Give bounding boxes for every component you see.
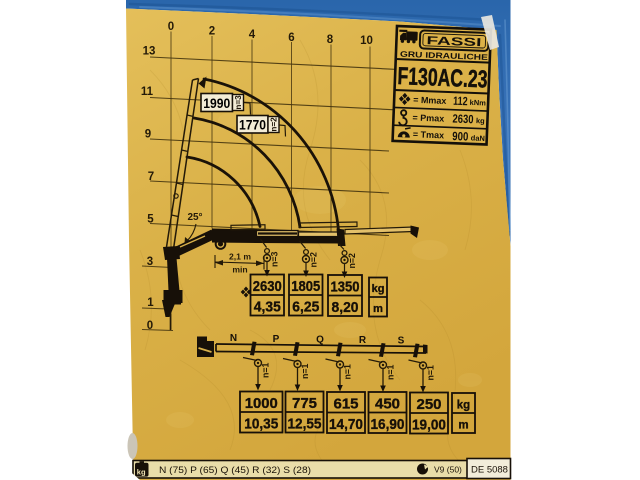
svg-text:900: 900 bbox=[452, 129, 469, 144]
svg-text:4: 4 bbox=[249, 29, 256, 41]
svg-text:n=1: n=1 bbox=[300, 363, 310, 379]
svg-text:Q: Q bbox=[316, 335, 324, 346]
svg-text:n=2: n=2 bbox=[309, 252, 319, 268]
svg-text:11: 11 bbox=[141, 86, 154, 98]
svg-text:N: N bbox=[230, 333, 237, 344]
svg-text:14,70: 14,70 bbox=[329, 417, 363, 433]
svg-text:R: R bbox=[359, 335, 367, 346]
svg-text:615: 615 bbox=[334, 397, 359, 413]
svg-text:1350: 1350 bbox=[331, 280, 360, 296]
svg-text:DE 5088: DE 5088 bbox=[471, 465, 508, 476]
svg-text:n=1: n=1 bbox=[343, 364, 353, 380]
svg-text:N (75) P (65) Q (45) R (32): N (75) P (65) Q (45) R (32) S (28) bbox=[159, 465, 311, 475]
svg-text:7: 7 bbox=[148, 171, 154, 183]
svg-text:1990: 1990 bbox=[203, 96, 230, 111]
svg-text:10,35: 10,35 bbox=[244, 417, 278, 433]
svg-text:F130AC.23: F130AC.23 bbox=[397, 63, 488, 93]
svg-text:daN: daN bbox=[471, 133, 486, 143]
svg-text:S: S bbox=[398, 336, 405, 347]
svg-text:n=3: n=3 bbox=[270, 251, 280, 267]
svg-text:775: 775 bbox=[292, 396, 317, 412]
svg-text:16,90: 16,90 bbox=[371, 417, 405, 433]
svg-text:5: 5 bbox=[147, 214, 154, 226]
svg-text:1: 1 bbox=[147, 297, 154, 309]
svg-text:n=1: n=1 bbox=[386, 364, 396, 380]
svg-text:n=1: n=1 bbox=[426, 365, 436, 381]
svg-text:0: 0 bbox=[168, 21, 174, 33]
svg-text:6: 6 bbox=[288, 32, 294, 44]
svg-text:= Mmax: = Mmax bbox=[413, 95, 447, 106]
svg-text:min: min bbox=[232, 265, 247, 275]
svg-text:kg: kg bbox=[457, 400, 470, 412]
svg-text:m: m bbox=[458, 420, 468, 432]
svg-text:9: 9 bbox=[145, 129, 151, 141]
svg-text:1770: 1770 bbox=[239, 118, 266, 133]
svg-text:= Pmax: = Pmax bbox=[412, 112, 444, 123]
svg-text:112: 112 bbox=[453, 94, 468, 109]
svg-text:6,25: 6,25 bbox=[292, 300, 319, 316]
svg-text:kNm: kNm bbox=[469, 98, 486, 108]
svg-text:FASSI: FASSI bbox=[426, 35, 481, 49]
svg-text:1000: 1000 bbox=[245, 396, 278, 412]
svg-text:4,35: 4,35 bbox=[254, 300, 281, 316]
svg-text:1805: 1805 bbox=[291, 279, 320, 295]
svg-text:n=2: n=2 bbox=[347, 253, 357, 269]
svg-text:n=2: n=2 bbox=[269, 117, 278, 132]
svg-text:m: m bbox=[373, 303, 383, 315]
svg-text:kg: kg bbox=[137, 467, 146, 476]
svg-text:0: 0 bbox=[147, 320, 153, 332]
svg-text:2,1 m: 2,1 m bbox=[229, 252, 251, 262]
svg-text:8,20: 8,20 bbox=[332, 300, 359, 316]
svg-text:8: 8 bbox=[327, 34, 334, 46]
svg-text:n=1: n=1 bbox=[261, 362, 271, 378]
svg-text:kg: kg bbox=[372, 283, 385, 295]
svg-text:12,55: 12,55 bbox=[288, 417, 322, 433]
svg-text:19,00: 19,00 bbox=[412, 418, 446, 434]
svg-text:250: 250 bbox=[417, 397, 442, 413]
svg-text:n=3: n=3 bbox=[234, 95, 243, 110]
svg-text:450: 450 bbox=[375, 397, 400, 413]
svg-text:25°: 25° bbox=[187, 212, 202, 223]
svg-text:2: 2 bbox=[209, 26, 215, 38]
svg-text:= Tmax: = Tmax bbox=[413, 129, 445, 140]
svg-text:10: 10 bbox=[360, 35, 373, 47]
svg-text:3: 3 bbox=[147, 256, 153, 268]
svg-text:P: P bbox=[273, 334, 280, 345]
svg-text:kg: kg bbox=[476, 116, 486, 125]
svg-text:2630: 2630 bbox=[253, 279, 282, 295]
svg-text:2630: 2630 bbox=[452, 112, 474, 127]
svg-text:V9 (50): V9 (50) bbox=[434, 465, 462, 475]
svg-text:13: 13 bbox=[143, 46, 156, 58]
